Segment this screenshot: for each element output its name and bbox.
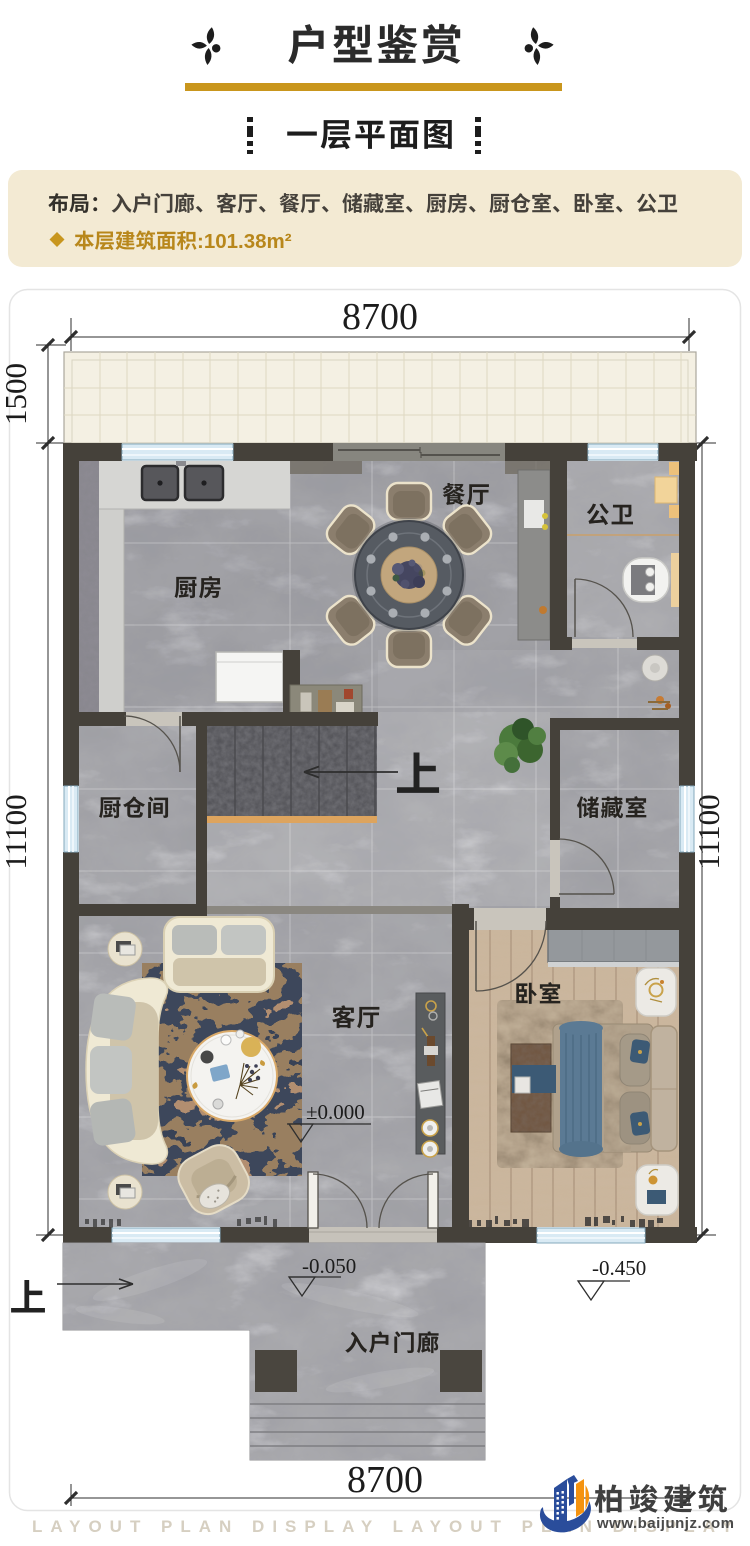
svg-text:8700: 8700 [342, 296, 418, 338]
svg-text:-0.450: -0.450 [592, 1256, 646, 1280]
svg-text:11100: 11100 [0, 794, 33, 869]
svg-text:8700: 8700 [347, 1459, 423, 1501]
svg-text:www.baijunjz.com: www.baijunjz.com [596, 1515, 734, 1532]
svg-text:11100: 11100 [691, 794, 726, 869]
svg-text::101.38m²: :101.38m² [197, 230, 292, 253]
svg-text:-0.050: -0.050 [302, 1254, 356, 1278]
svg-text:1500: 1500 [0, 363, 33, 425]
svg-text:±0.000: ±0.000 [306, 1100, 365, 1124]
